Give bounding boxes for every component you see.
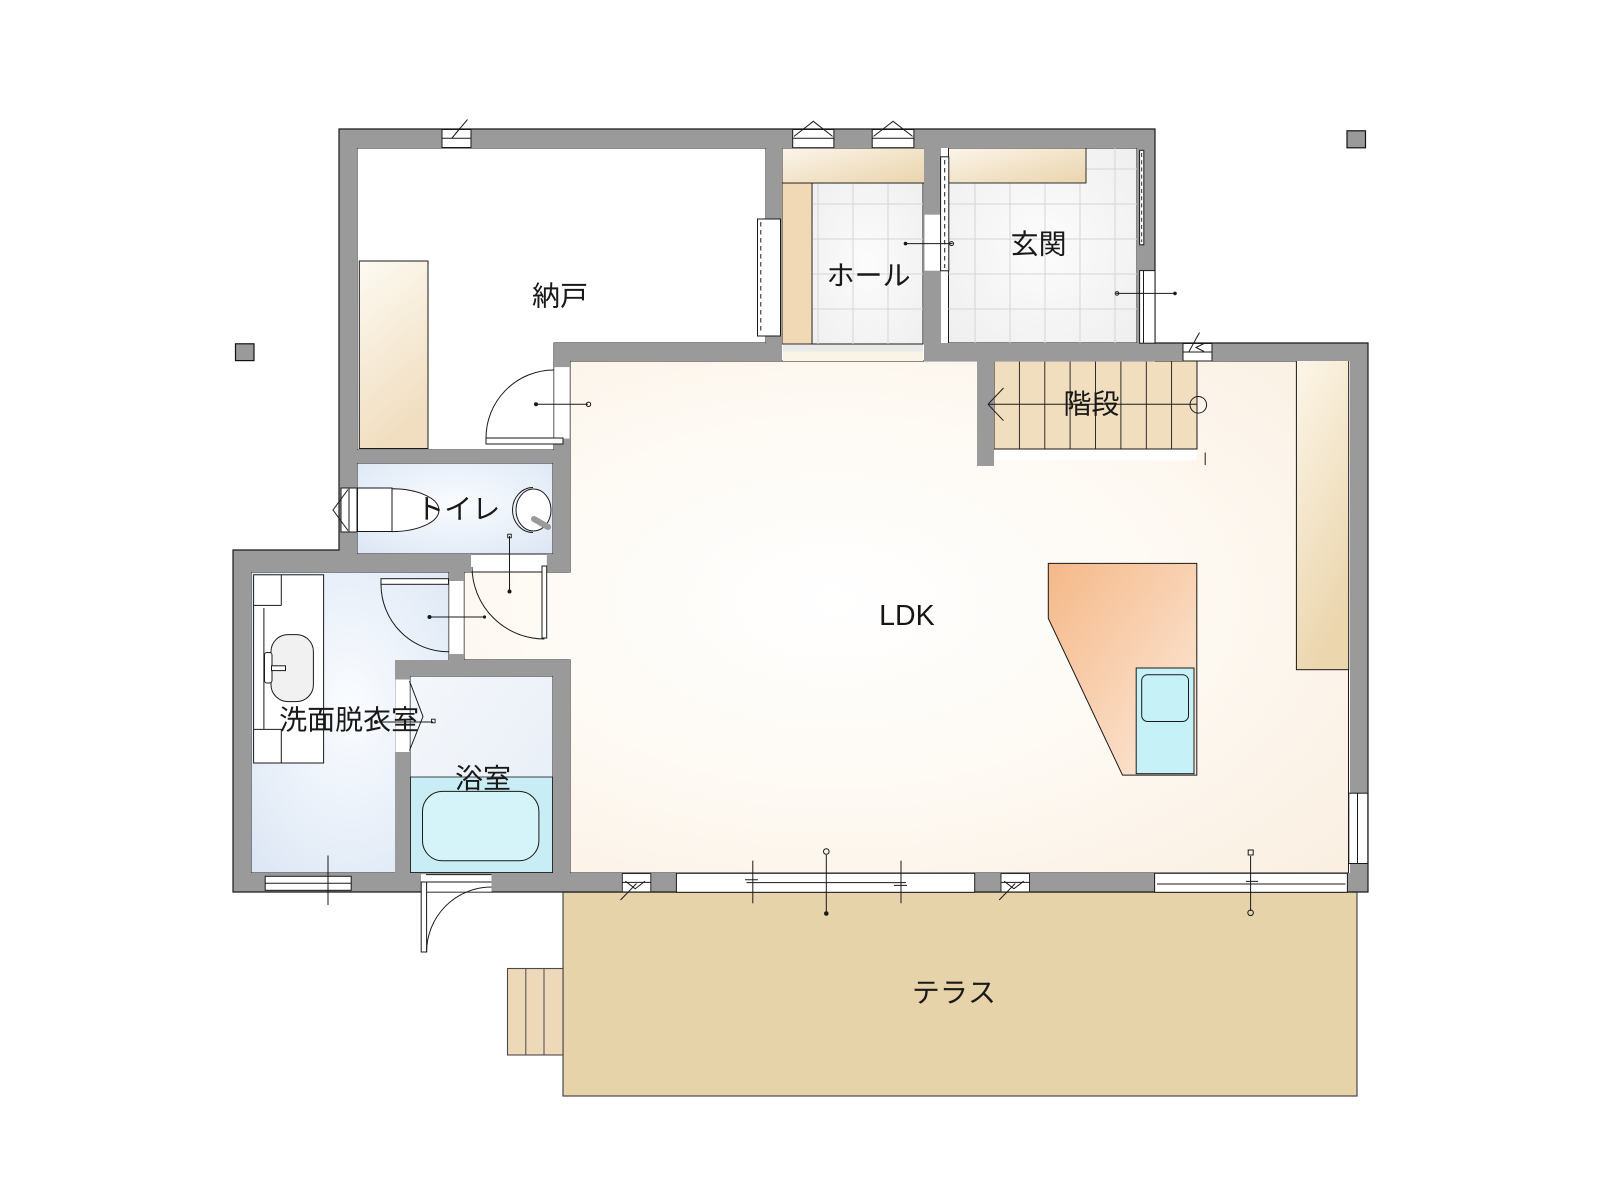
svg-text:LDK: LDK bbox=[879, 600, 934, 632]
